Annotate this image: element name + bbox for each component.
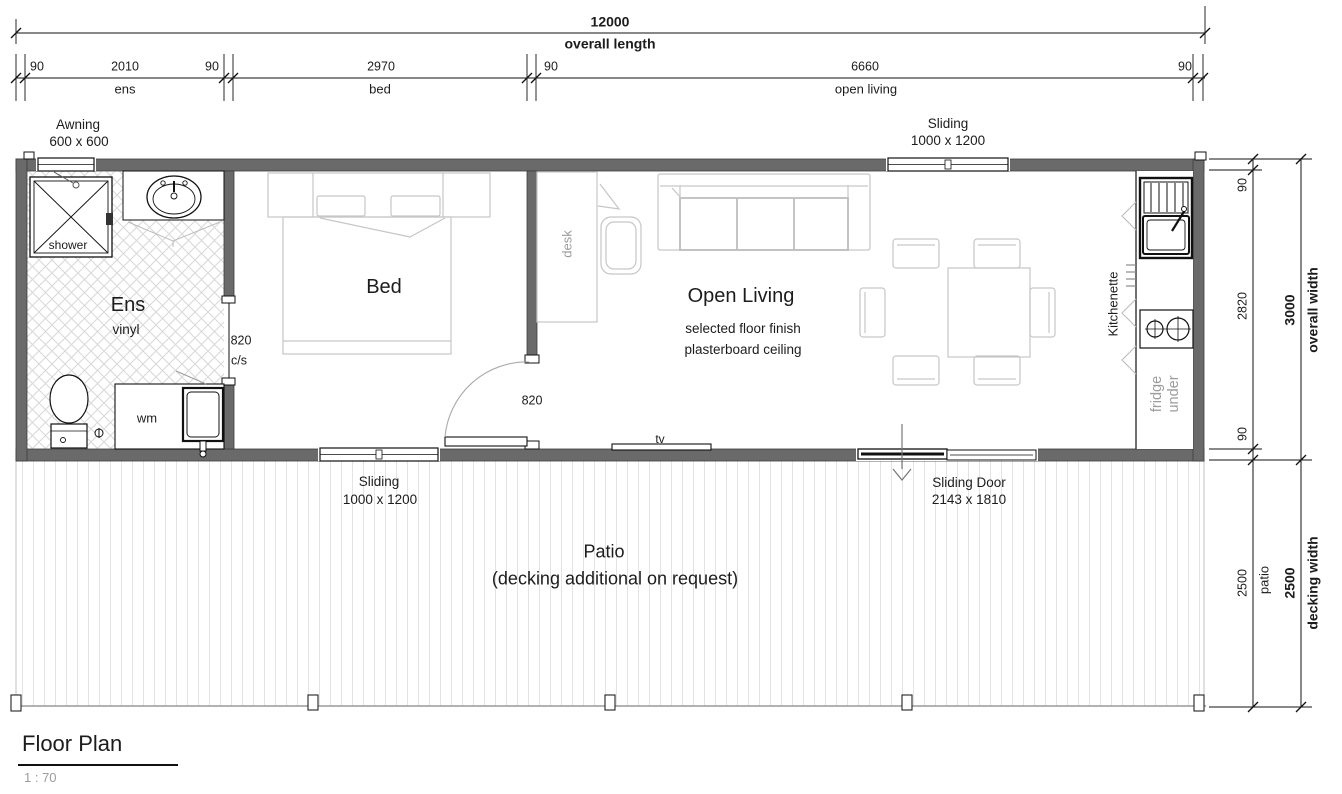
title-underline [18,764,178,766]
ens-door-type: c/s [231,354,247,369]
dim-overall-length-value: 12000 [591,14,630,31]
dim-seg-name-bed: bed [369,81,391,96]
sliding-door-label: Sliding Door [932,475,1006,491]
dim-overall-length-label: overall length [564,36,655,53]
sliding-window-top-label: Sliding [928,116,969,132]
awning-window-label: Awning [56,117,100,133]
fridge-label-line2: under [1166,375,1183,412]
dim-overall-width-value: 3000 [1282,294,1299,325]
dim-overall-width-label: overall width [1305,267,1322,353]
room-bed-name: Bed [366,276,402,300]
shower-label: shower [49,238,88,252]
kitchenette-label: Kitchenette [1105,271,1120,336]
washing-machine-label: wm [137,410,157,425]
sliding-window-bottom [318,448,440,461]
dim-seg-value: 2010 [111,60,139,75]
dim-seg-value: 90 [544,60,558,75]
sliding-window-top [886,158,1010,171]
dim-right-value: 2820 [1236,292,1251,320]
dim-seg-value: 90 [205,60,219,75]
dim-seg-name-open-living: open living [835,81,897,96]
sliding-window-bottom-size: 1000 x 1200 [343,492,417,508]
room-patio-name: Patio [583,541,624,562]
dim-seg-name-ens: ens [115,81,136,96]
dim-seg-value: 90 [1178,60,1192,75]
floor-plan-drawing [0,0,1342,794]
corner-marker-top-right [1195,152,1206,160]
room-open-living-note: selected floor finish [685,321,801,337]
room-open-living-note: plasterboard ceiling [684,342,801,358]
sliding-window-top-size: 1000 x 1200 [911,133,985,149]
washing-machine-fixture [115,371,224,457]
fridge-label-line1: fridge [1149,375,1166,412]
dim-patio-value: 2500 [1236,569,1251,597]
dim-right-value: 90 [1236,178,1251,192]
bed-door-width: 820 [522,394,543,409]
tv-label: tv [655,432,664,446]
sliding-door [856,448,1038,461]
room-ens-name: Ens [111,294,145,318]
dim-decking-width-value: 2500 [1282,567,1299,598]
floor-plan-sheet: 12000 overall length 90 2010 90 2970 90 … [0,0,1342,794]
room-patio-note: (decking additional on request) [492,568,738,589]
sliding-window-bottom-label: Sliding [359,474,400,490]
dim-right-value: 90 [1236,427,1251,441]
ens-door-width: 820 [231,334,252,349]
dim-seg-value: 2970 [367,60,395,75]
dim-decking-width-label: decking width [1305,536,1322,629]
drawing-title: Floor Plan [22,731,122,757]
awning-window-size: 600 x 600 [49,134,108,150]
dim-patio-name: patio [1256,566,1271,594]
fridge-label: fridge under [1149,375,1183,412]
dim-seg-value: 90 [30,60,44,75]
drawing-scale: 1 : 70 [24,770,57,785]
sliding-door-size: 2143 x 1810 [932,492,1006,508]
dim-seg-value: 6660 [851,60,879,75]
room-open-living-name: Open Living [688,285,795,309]
desk-label: desk [559,230,574,257]
room-ens-floor: vinyl [112,322,139,338]
